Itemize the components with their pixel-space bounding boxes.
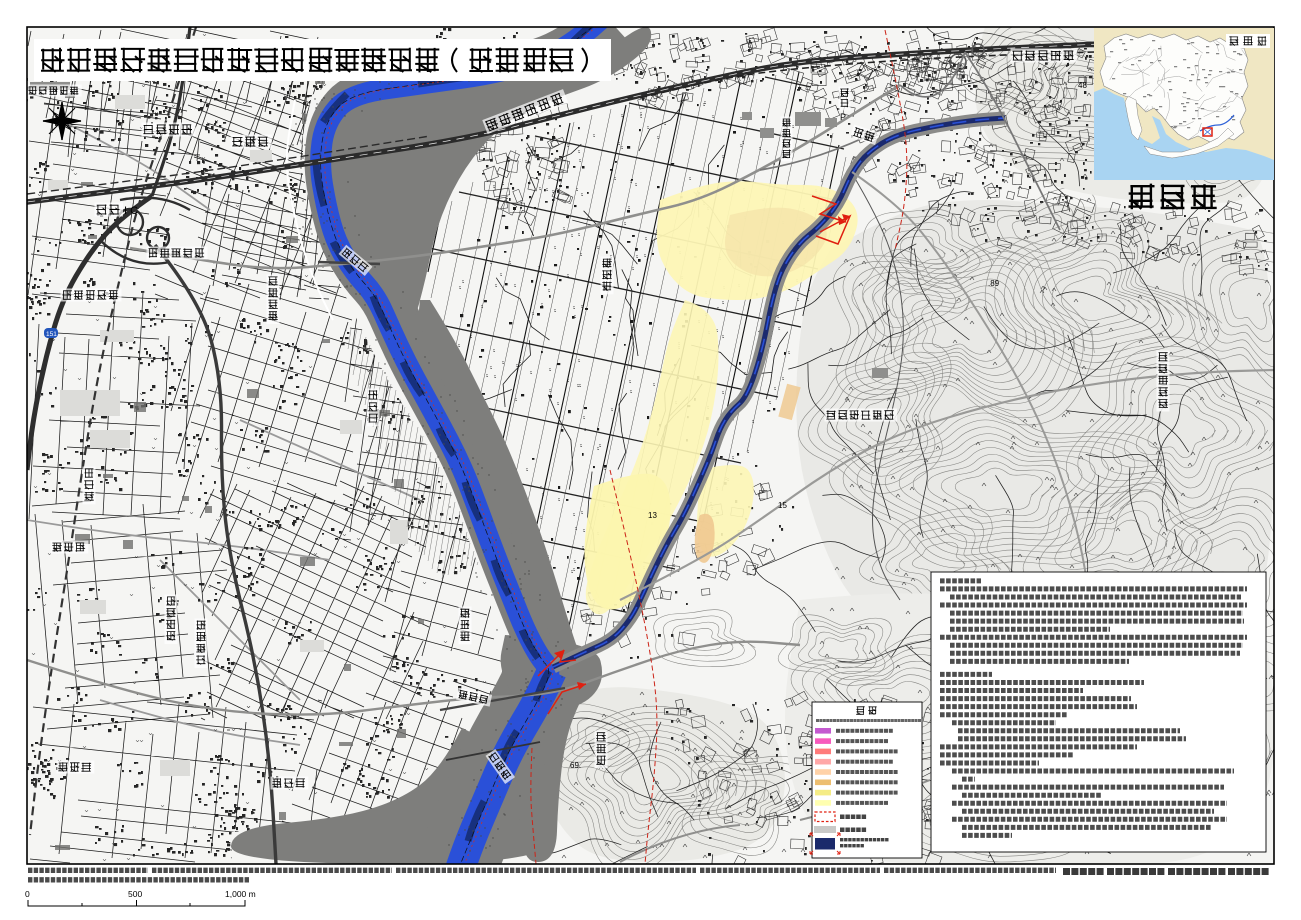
svg-text:13: 13	[648, 511, 657, 520]
svg-text:P: P	[840, 112, 846, 122]
svg-text:69.: 69.	[570, 761, 581, 770]
svg-text:151: 151	[46, 331, 57, 338]
svg-text:48: 48	[1078, 81, 1087, 90]
svg-text:15: 15	[778, 501, 787, 510]
svg-text:0: 0	[25, 889, 30, 899]
svg-text:500: 500	[128, 889, 142, 899]
svg-text:1,000 m: 1,000 m	[225, 889, 256, 899]
svg-text:I C: I C	[124, 205, 138, 217]
svg-text:.89: .89	[988, 279, 1000, 288]
